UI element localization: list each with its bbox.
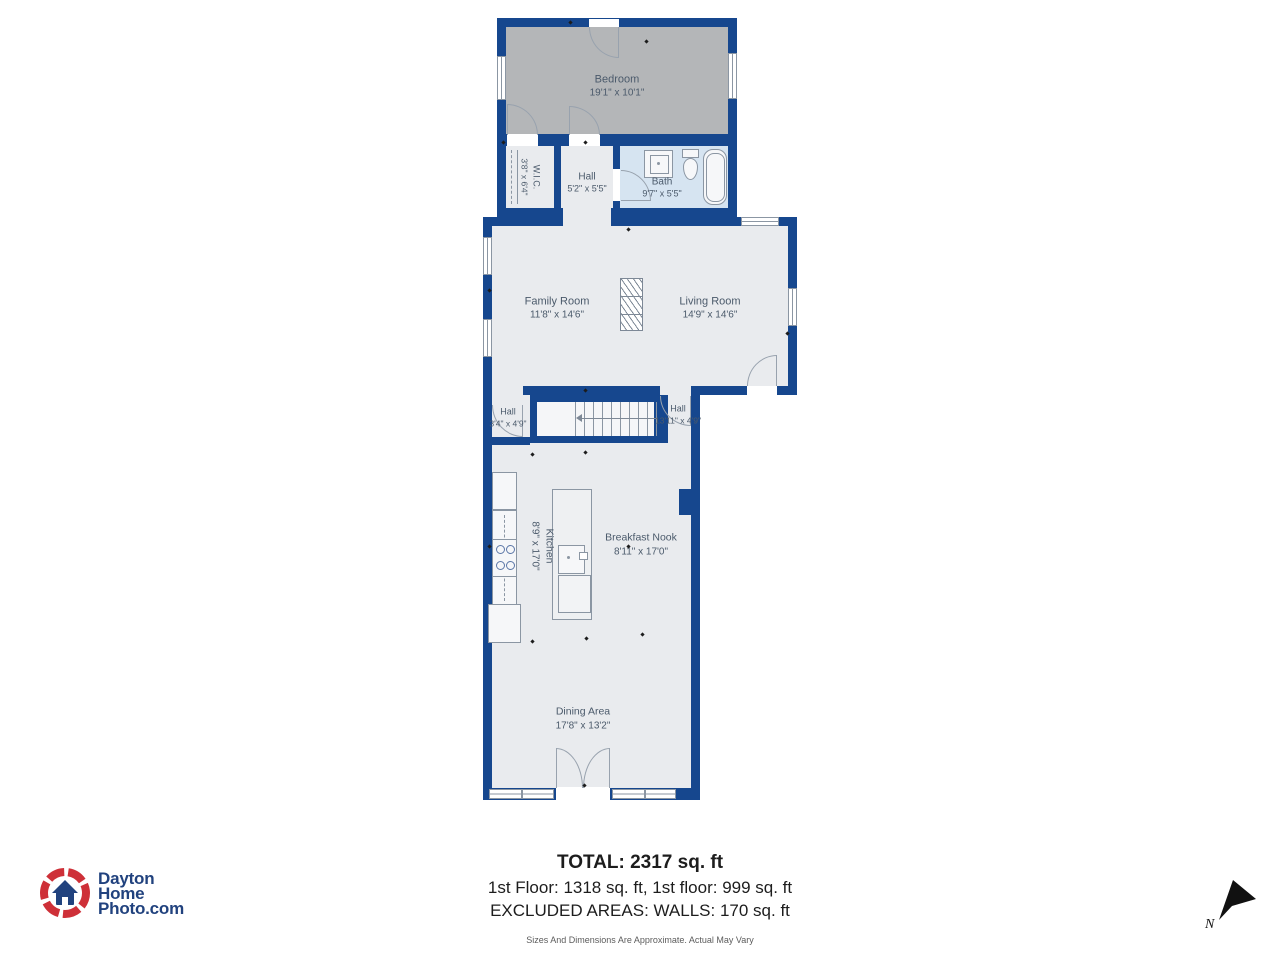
stair-direction-line [582, 418, 656, 419]
door-opening [747, 386, 777, 395]
room-label-dining-area: Dining Area 17'8" x 13'2" [556, 706, 611, 733]
door-opening [613, 169, 620, 201]
north-arrow-icon: N [1192, 856, 1272, 936]
toilet-tank [682, 149, 699, 158]
opening [492, 386, 523, 395]
window [483, 319, 492, 357]
floor-plan-page: Bedroom 19'1" x 10'1" W.I.C. 3'8" x 6'4"… [0, 0, 1280, 960]
bathtub [703, 149, 727, 205]
window [612, 789, 645, 799]
door-opening [507, 134, 538, 146]
room-label-breakfast-nook: Breakfast Nook 8'11" x 17'0" [605, 532, 677, 559]
total-area-text: TOTAL: 2317 sq. ft [0, 852, 1280, 874]
door-opening [556, 787, 610, 800]
excluded-areas-text: EXCLUDED AREAS: WALLS: 170 sq. ft [0, 901, 1280, 921]
north-compass: N [1192, 856, 1272, 941]
room-label-kitchen: Kitchen 8'9" x 17'0" [529, 521, 556, 570]
window [497, 56, 506, 100]
compass-n-label: N [1204, 917, 1215, 932]
room-label-family-room: Family Room 11'8" x 14'6" [525, 294, 590, 321]
wall [497, 208, 737, 217]
kitchen-island [552, 489, 592, 620]
room-label-hall-upper: Hall 5'2" x 5'5" [567, 171, 606, 196]
kitchen-appliance [488, 604, 521, 643]
window [728, 53, 737, 99]
window [522, 789, 554, 799]
closet-rod-dashed [511, 150, 513, 204]
stair-direction-arrow [576, 414, 582, 422]
kitchen-fridge [492, 472, 517, 510]
room-label-bath: Bath 9'7" x 5'5" [642, 176, 681, 201]
window [645, 789, 676, 799]
room-label-hall-right: Hall 13'11" x 4'9" [655, 404, 701, 427]
dayton-home-photo-logo: Dayton Home Photo.com [38, 866, 184, 920]
disclaimer-text: Sizes And Dimensions Are Approximate. Ac… [0, 935, 1280, 945]
wall [728, 18, 737, 217]
room-label-living-room: Living Room 14'9" x 14'6" [679, 294, 740, 321]
window [788, 288, 797, 326]
window [489, 789, 522, 799]
wall [497, 18, 506, 217]
room-label-hall-left: Hall 3'4" x 4'9" [489, 407, 526, 430]
stair-treads [575, 402, 661, 436]
door-opening [589, 19, 619, 27]
bath-sink [644, 150, 673, 178]
floor-areas-text: 1st Floor: 1318 sq. ft, 1st floor: 999 s… [0, 878, 1280, 898]
opening [660, 386, 691, 395]
wall [691, 395, 700, 800]
window [483, 237, 492, 275]
room-label-wic: W.I.C. 3'8" x 6'4" [519, 158, 542, 195]
chimney [620, 278, 643, 331]
room-label-bedroom: Bedroom 19'1" x 10'1" [590, 72, 645, 99]
opening [563, 208, 611, 226]
logo-line-3: Photo.com [98, 901, 184, 916]
camera-house-logo-icon [38, 866, 92, 920]
wall-stub [679, 489, 691, 515]
logo-text: Dayton Home Photo.com [98, 871, 184, 916]
kitchen-stove [492, 539, 517, 577]
wall [554, 134, 561, 208]
area-summary: TOTAL: 2317 sq. ft 1st Floor: 1318 sq. f… [0, 852, 1280, 945]
window [741, 217, 779, 226]
